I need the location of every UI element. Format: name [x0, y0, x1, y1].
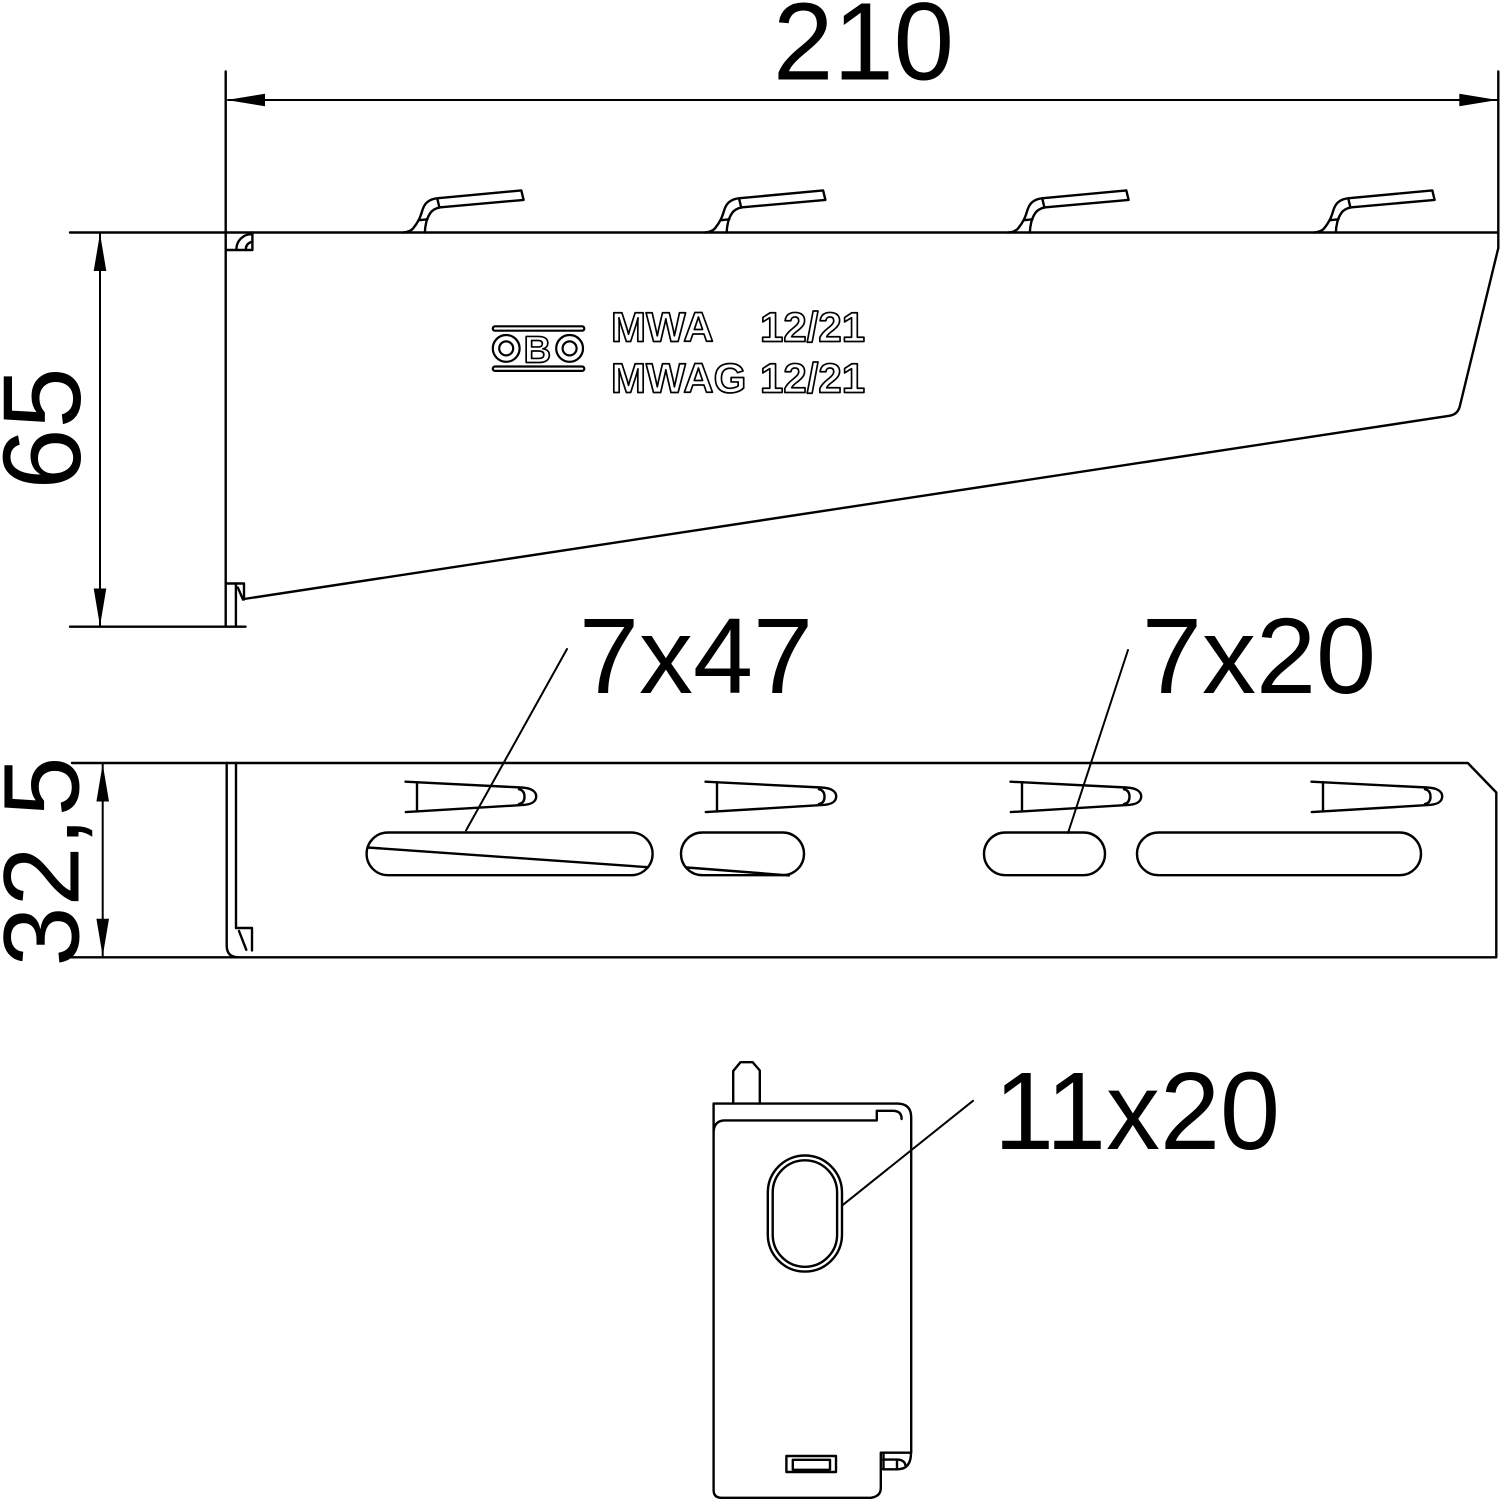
- svg-text:210: 210: [773, 0, 954, 104]
- svg-text:7x47: 7x47: [579, 595, 813, 716]
- svg-text:7x20: 7x20: [1142, 595, 1376, 716]
- svg-text:B: B: [524, 330, 551, 372]
- svg-text:12/21: 12/21: [760, 304, 865, 351]
- svg-text:MWA: MWA: [611, 304, 714, 351]
- svg-text:32,5: 32,5: [0, 756, 102, 966]
- svg-text:65: 65: [0, 367, 104, 489]
- svg-text:MWAG: MWAG: [611, 355, 746, 402]
- svg-text:12/21: 12/21: [760, 355, 865, 402]
- svg-text:11x20: 11x20: [994, 1050, 1280, 1173]
